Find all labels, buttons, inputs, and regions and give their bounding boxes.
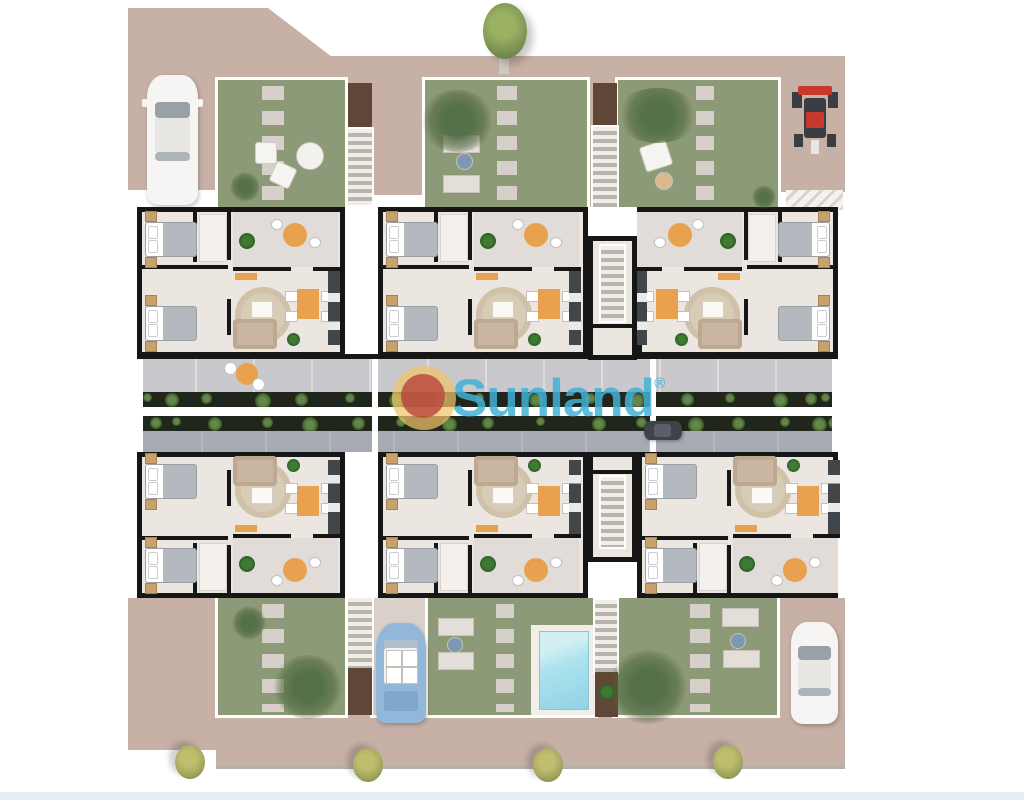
unit-interior [378, 452, 588, 598]
nightstand [145, 341, 157, 352]
hallway-rug [718, 273, 740, 280]
planter-shrub [302, 417, 318, 431]
bed [386, 464, 438, 499]
apartment-unit-5 [378, 452, 588, 598]
pergola-landing [348, 668, 372, 715]
terrace-chair [252, 378, 265, 391]
car-trunk [384, 691, 418, 711]
hallway-rug [735, 525, 757, 532]
terrace-round-table [283, 558, 307, 582]
coffee-table [251, 301, 273, 318]
white-car-bottom-right [791, 622, 838, 724]
planter-shrub [812, 417, 827, 431]
car-seat [402, 667, 418, 684]
sun-lounger [438, 618, 474, 636]
tractor-wheel [827, 134, 836, 147]
interior-wall [727, 545, 731, 593]
stair-treads [601, 246, 624, 321]
garden-side-table [456, 153, 473, 170]
potted-plant [787, 459, 800, 472]
interior-wall [468, 212, 472, 260]
nightstand [818, 295, 830, 306]
terrace-chair [550, 237, 562, 248]
bed [145, 548, 197, 583]
dining-table [297, 486, 319, 516]
planter-shrub [805, 393, 817, 405]
nightstand [386, 583, 398, 594]
sunland-brand-text: Sunland® [452, 372, 664, 425]
car-seat [386, 650, 402, 667]
pergola-landing [348, 83, 372, 129]
nightstand [645, 583, 657, 594]
blue-convertible [376, 623, 426, 723]
bush-bottom [713, 745, 743, 779]
rear-window [155, 152, 190, 161]
dining-table [656, 289, 678, 319]
unit-interior [637, 452, 838, 598]
interior-wall [227, 470, 231, 506]
palm-tree [420, 90, 495, 152]
planter-shrub [725, 393, 735, 403]
coffee-table [492, 301, 514, 318]
palm-tree [615, 88, 700, 143]
interior-wall [313, 534, 340, 538]
nightstand [645, 453, 657, 464]
windshield [798, 646, 831, 660]
bed [386, 548, 438, 583]
apartment-unit-2 [378, 207, 588, 357]
planter-shrub [345, 393, 355, 403]
bed [145, 306, 197, 341]
bathroom [199, 214, 227, 262]
interior-wall [468, 470, 472, 506]
stairwell-core-bottom [588, 452, 637, 562]
tractor-cab [806, 112, 824, 128]
car-roof [798, 660, 831, 688]
potted-plant [239, 556, 255, 572]
bathroom [440, 543, 468, 591]
sunland-watermark: Sunland® [392, 366, 664, 430]
apartment-unit-3 [637, 207, 838, 357]
bed [645, 548, 697, 583]
interior-wall [744, 299, 748, 335]
unit-interior [378, 207, 588, 357]
coffee-table [251, 487, 273, 504]
hallway-rug [476, 273, 498, 280]
nightstand [645, 537, 657, 548]
white-car-top-left [147, 75, 198, 205]
interior-wall [227, 545, 231, 593]
car-seat [402, 650, 418, 667]
small-plant [232, 606, 266, 640]
dining-table [297, 289, 319, 319]
bush-bottom [353, 748, 383, 782]
nightstand [145, 211, 157, 222]
interior-wall [468, 545, 472, 593]
tractor-hitch [811, 140, 819, 154]
planter-shrub [262, 417, 273, 428]
stair-treads [601, 477, 624, 547]
unit-interior [637, 207, 838, 357]
terrace-chair [271, 575, 283, 586]
bed [145, 464, 197, 499]
terrace-round-table [668, 223, 692, 247]
stair-wall [593, 324, 632, 328]
nightstand [145, 257, 157, 268]
rear-window [798, 688, 831, 696]
potted-plant [528, 459, 541, 472]
side-mirror [142, 99, 148, 107]
interior-wall [474, 267, 532, 271]
potted-plant [239, 233, 255, 249]
interior-wall [474, 534, 532, 538]
interior-wall [233, 267, 291, 271]
band-separator [137, 359, 143, 452]
car-seat [386, 667, 402, 684]
side-mirror [197, 99, 203, 107]
floor-plan-rendering: Sunland® [0, 0, 1024, 800]
interior-wall [733, 534, 791, 538]
garden-table-round [296, 142, 324, 170]
nightstand [386, 537, 398, 548]
nightstand [818, 257, 830, 268]
staircase-top-b [593, 127, 617, 207]
lower-walkway-strip [137, 431, 838, 452]
terrace-round-table [524, 558, 548, 582]
kitchen-counter [569, 460, 581, 534]
hallway-rug [235, 273, 257, 280]
terrace-chair [654, 237, 666, 248]
terrace-chair [809, 557, 821, 568]
staircase-bottom-a [348, 598, 372, 668]
pergola-landing [593, 83, 617, 127]
palm-tree [272, 655, 344, 719]
apartment-unit-1 [137, 207, 345, 357]
sofa [233, 319, 277, 349]
stepping-stones-top-2 [497, 86, 517, 204]
nightstand [386, 257, 398, 268]
apartment-unit-6 [637, 452, 838, 598]
interior-wall [684, 267, 742, 271]
interior-wall [227, 212, 231, 260]
nightstand [386, 453, 398, 464]
interior-wall [727, 470, 731, 506]
band-separator [832, 359, 838, 452]
staircase-top-a [348, 129, 372, 205]
planter-shrub [165, 393, 179, 407]
nightstand [145, 537, 157, 548]
nightstand [818, 341, 830, 352]
sun-lounger [723, 650, 760, 668]
stepping-stones-bottom-3 [690, 604, 710, 712]
terrace-round-table [783, 558, 807, 582]
coffee-table [702, 301, 724, 318]
interior-wall [233, 534, 291, 538]
planter-shrub [143, 393, 152, 402]
dining-table [797, 486, 819, 516]
bed [145, 222, 197, 257]
kitchen-counter [569, 271, 581, 345]
bathroom [748, 214, 776, 262]
potted-plant [739, 556, 755, 572]
terrace-chair [512, 219, 524, 230]
interior-wall [468, 299, 472, 335]
sun-lounger [443, 175, 480, 193]
planter-shrub [688, 417, 704, 431]
stair-wall [593, 470, 632, 474]
street-top-band [128, 56, 845, 79]
sofa [733, 456, 777, 486]
red-tractor [792, 86, 838, 158]
terrace-chair [271, 219, 283, 230]
planter-shrub [352, 417, 365, 430]
terrace-chair [512, 575, 524, 586]
potted-plant [287, 333, 300, 346]
tree-top [483, 3, 527, 59]
nightstand [145, 295, 157, 306]
street-top-left-block [128, 8, 332, 57]
hallway-rug [235, 525, 257, 532]
sofa [233, 456, 277, 486]
planter-shrub [821, 393, 830, 402]
garden-side-table [447, 637, 463, 653]
garden-chair [255, 142, 277, 164]
nightstand [386, 295, 398, 306]
planter-shrub [681, 393, 694, 406]
nightstand [386, 211, 398, 222]
bush-bottom [533, 748, 563, 782]
terrace-chair [309, 237, 321, 248]
interior-wall [227, 299, 231, 335]
terrace-chair [771, 575, 783, 586]
bathroom [699, 543, 727, 591]
planter-shrub [773, 393, 788, 407]
stepping-stones-top-3 [696, 86, 714, 204]
bush-bottom [175, 745, 205, 779]
planter-shrub [208, 417, 222, 431]
nightstand [145, 499, 157, 510]
nightstand [818, 211, 830, 222]
bed [386, 306, 438, 341]
nightstand [386, 499, 398, 510]
dining-chair [677, 291, 690, 302]
planter-shrub [732, 417, 745, 430]
registered-trademark: ® [654, 375, 664, 392]
coffee-table [492, 487, 514, 504]
nightstand [645, 499, 657, 510]
small-plant [230, 172, 260, 202]
planter-shrub [201, 393, 212, 404]
bathroom [440, 214, 468, 262]
dining-table [538, 486, 560, 516]
tractor-front-bar [798, 86, 832, 95]
potted-plant [480, 556, 496, 572]
terrace-chair [309, 557, 321, 568]
windshield [155, 102, 190, 118]
sunland-sun-icon [392, 366, 456, 430]
sun-inner-circle [401, 374, 445, 418]
potted-plant [480, 233, 496, 249]
coffee-table [751, 487, 773, 504]
terrace-round-table [524, 223, 548, 247]
bed [778, 222, 830, 257]
stepping-stones-bottom-2 [496, 604, 514, 712]
potted-plant [528, 333, 541, 346]
terrace-round-table [283, 223, 307, 247]
unit-interior [137, 452, 345, 598]
garden-side-table [730, 633, 746, 649]
sun-lounger [438, 652, 474, 670]
kitchen-counter [328, 271, 340, 345]
potted-plant [287, 459, 300, 472]
bed [386, 222, 438, 257]
swimming-pool [539, 631, 589, 710]
street-gap-a [332, 78, 428, 195]
apartment-unit-4 [137, 452, 345, 598]
band-separator [372, 359, 378, 452]
sofa [474, 319, 518, 349]
stairwell-core-top [588, 236, 637, 360]
dining-chair [677, 311, 690, 322]
interior-wall [554, 534, 581, 538]
planter-shrub [780, 417, 790, 427]
sofa [698, 319, 742, 349]
garden-table-round [655, 172, 673, 190]
terrace-chair [550, 557, 562, 568]
terrace-chair [692, 219, 704, 230]
car-roof [155, 118, 190, 152]
staircase-bottom-b [595, 600, 617, 672]
image-bottom-edge [0, 792, 1024, 800]
street-bottom-left-column [128, 598, 221, 716]
sun-lounger [722, 608, 759, 627]
tractor-wheel [794, 134, 803, 147]
interior-wall [813, 534, 840, 538]
planter-shrub [172, 417, 181, 426]
nightstand [145, 453, 157, 464]
hallway-rug [476, 525, 498, 532]
nightstand [386, 341, 398, 352]
sofa [474, 456, 518, 486]
potted-plant [720, 233, 736, 249]
bed [778, 306, 830, 341]
unit-interior [137, 207, 345, 357]
kitchen-counter [328, 460, 340, 534]
small-bush [752, 185, 776, 209]
planter-shrub [150, 417, 162, 429]
bed [645, 464, 697, 499]
dining-table [538, 289, 560, 319]
bathroom [199, 543, 227, 591]
windshield [384, 640, 418, 648]
planter-shrub [295, 393, 308, 406]
nightstand [145, 583, 157, 594]
palm-tree [608, 650, 688, 724]
kitchen-counter [828, 460, 840, 534]
planter-shrub [255, 393, 271, 407]
potted-plant [675, 333, 688, 346]
